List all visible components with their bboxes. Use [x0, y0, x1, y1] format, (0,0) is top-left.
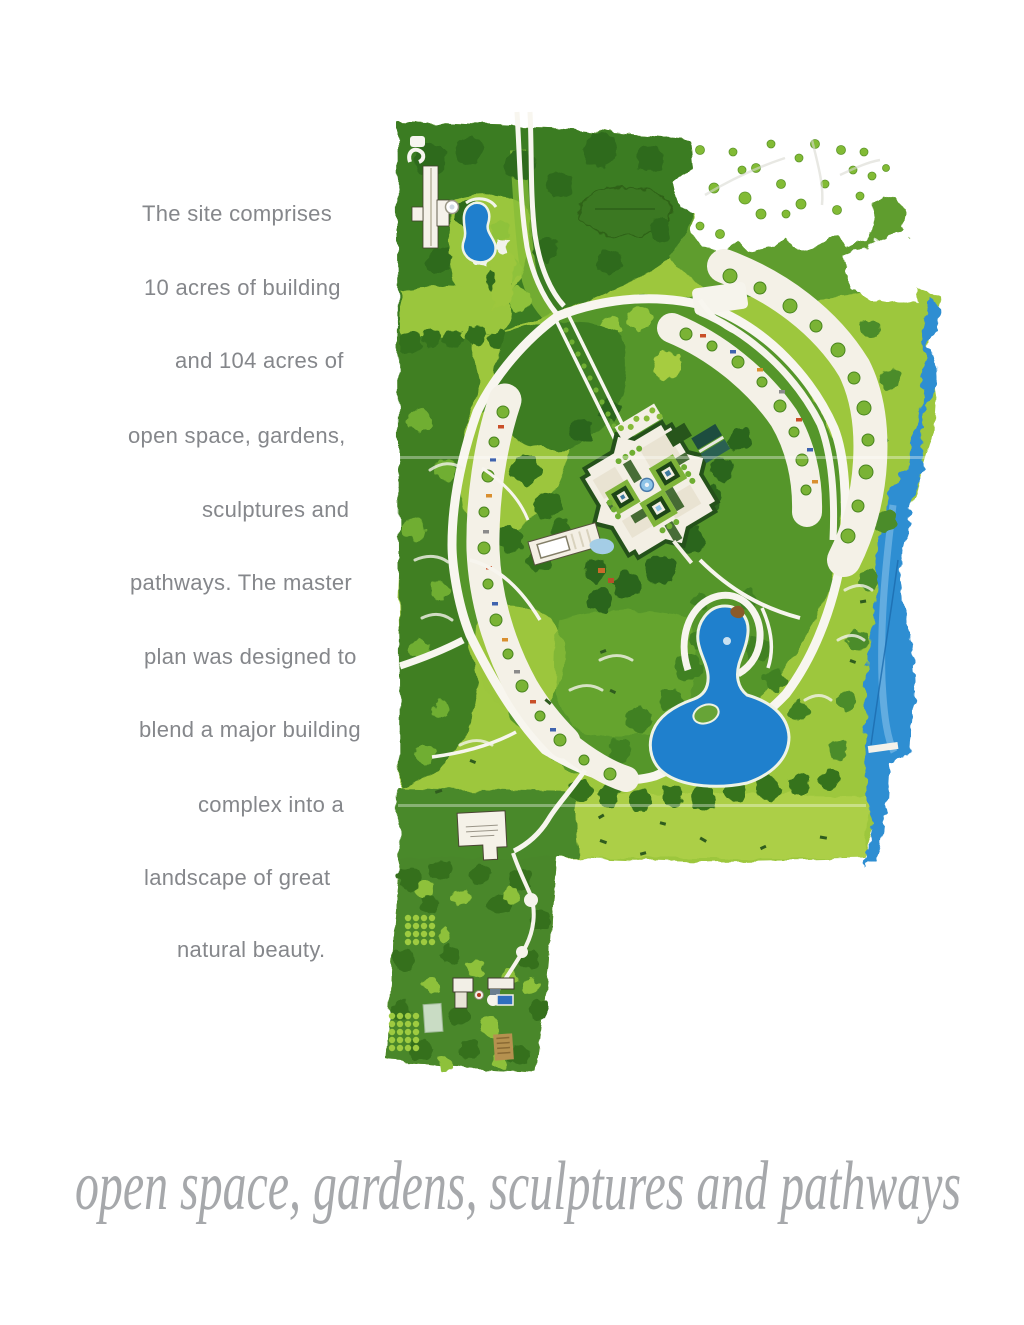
svg-text:open space, gardens, sculpture: open space, gardens, sculptures and path… — [75, 1148, 961, 1225]
